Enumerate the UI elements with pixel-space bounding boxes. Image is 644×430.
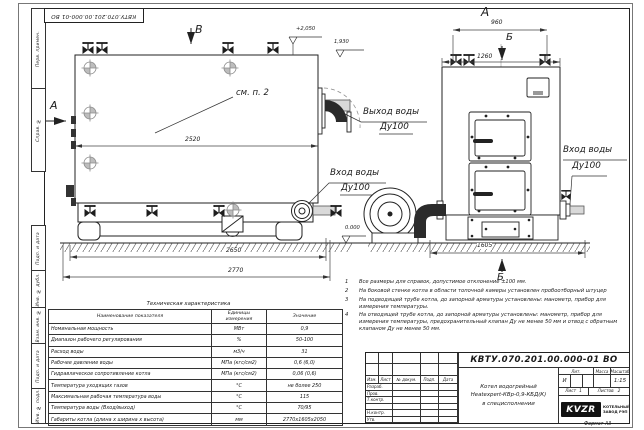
outlet-label-line1: Выход воды — [363, 108, 419, 117]
spec-table-section: Техническая характеристика Наименование … — [48, 301, 329, 426]
see-note-label: см. п. 2 — [236, 89, 269, 98]
note-item: 4На отводящей трубе котла, до запорной а… — [345, 312, 629, 333]
drawing-sheet: Перв. примен. Справ. № Подп. и дата Инв.… — [0, 0, 644, 430]
elevation-ground: 0.000 — [345, 226, 360, 231]
skid-beam — [96, 222, 282, 236]
table-row: Гидравлическое сопротивление котлаМПа (к… — [49, 369, 343, 380]
sheet-cell: Лист1 — [558, 388, 588, 396]
dim-2520: 2520 — [185, 137, 200, 143]
boiler-skirt — [78, 203, 313, 222]
front-view — [437, 44, 584, 240]
table-row: Максимальная рабочая температура воды°С1… — [49, 391, 343, 402]
inlet-front-label-line1: Вход воды — [563, 146, 612, 155]
dim-2770: 2770 — [228, 268, 243, 274]
table-row: Габариты котла (длина х ширина х высота)… — [49, 414, 343, 425]
table-row: Температура уходящих газов°Сне более 250 — [49, 380, 343, 391]
table-row: Рабочее давление водыМПа (кгс/см2)0,6 (6… — [49, 357, 343, 368]
blower-fan — [364, 188, 446, 243]
spec-table: Наименование показателя Единицы измерени… — [48, 309, 343, 426]
product-name: Котел водогрейный Heatexpert-КВр-0,9-КБД… — [458, 368, 558, 423]
outlet-label-line2: Ду100 — [380, 123, 409, 132]
spec-header-value: Значение — [267, 310, 343, 324]
signature-grid: Изм. Лист № докум. Подп. Дата Разраб. Пр… — [366, 353, 458, 423]
ground-hatching — [60, 243, 590, 252]
title-block: Изм. Лист № докум. Подп. Дата Разраб. Пр… — [365, 352, 630, 424]
base-frame-front — [446, 215, 558, 240]
inlet-side-label-line2: Ду100 — [341, 184, 370, 193]
skid-foot-left — [78, 222, 100, 240]
boiler-shell-side — [75, 55, 318, 203]
inlet-front-label-line2: Ду100 — [572, 162, 601, 171]
elevation-top: +2,050 — [296, 27, 315, 32]
format-label: Формат А3 — [584, 423, 611, 428]
section-label-top: Б — [506, 33, 513, 43]
dim-1605: 1605 — [477, 243, 492, 249]
elevation-outlet: 1,930 — [334, 40, 349, 45]
view-b-label: В — [195, 24, 203, 35]
notes-list: 1Все размеры для справок, допустимое отк… — [345, 279, 629, 335]
doc-number: КВТУ.070.201.00.000-01 ВО — [458, 353, 629, 368]
dim-2650: 2650 — [226, 248, 241, 254]
note-item: 3На подводящей трубе котла, до запорной … — [345, 297, 629, 311]
inlet-side-label-line1: Вход воды — [330, 169, 379, 178]
sheets-cell: Листов2 — [588, 388, 629, 396]
mass-header: Масса — [593, 368, 610, 375]
water-outlet-elbow — [318, 88, 360, 134]
scale-value: 1:15 — [610, 375, 629, 388]
table-row: Номинальная мощностьМВт0,9 — [49, 324, 343, 335]
side-view — [66, 55, 360, 240]
spec-header-units: Единицы измерения — [212, 310, 267, 324]
fan-duct-elbow — [414, 204, 446, 238]
company-cell: KVZR КОТЕЛЬНЫЙ ЗАВОД РЭП — [558, 396, 629, 423]
front-view-label: А — [481, 6, 489, 18]
dim-1260: 1260 — [477, 54, 492, 60]
lit-header: Лит. — [558, 368, 593, 375]
company-name: КОТЕЛЬНЫЙ ЗАВОД РЭП — [603, 405, 629, 415]
mass-value — [593, 375, 610, 388]
furnace-door-upper — [469, 112, 531, 161]
kvzr-logo: KVZR — [561, 402, 601, 417]
door-lever-lower — [473, 192, 493, 196]
table-row: Диапазон рабочего регулирования%50-100 — [49, 335, 343, 346]
view-a-arrow-label: А — [50, 100, 58, 111]
spec-table-title: Техническая характеристика — [48, 301, 329, 307]
dim-960: 960 — [491, 20, 502, 26]
note-item: 1Все размеры для справок, допустимое отк… — [345, 279, 629, 286]
table-row: Температура воды (Вход/выход)°С70/95 — [49, 403, 343, 414]
note-item: 2На боковой стенке котла в области топоч… — [345, 288, 629, 295]
spec-header-name: Наименование показателя — [49, 310, 212, 324]
inspection-hatch — [527, 78, 549, 97]
scale-header: Масштаб — [610, 368, 629, 375]
table-row: Расход водым3/ч31 — [49, 346, 343, 357]
lit-value: И — [558, 375, 570, 388]
water-inlet-flange-front — [560, 201, 584, 219]
skid-foot-right — [276, 222, 302, 240]
door-lever-upper — [473, 139, 493, 143]
furnace-door-lower — [469, 163, 531, 215]
